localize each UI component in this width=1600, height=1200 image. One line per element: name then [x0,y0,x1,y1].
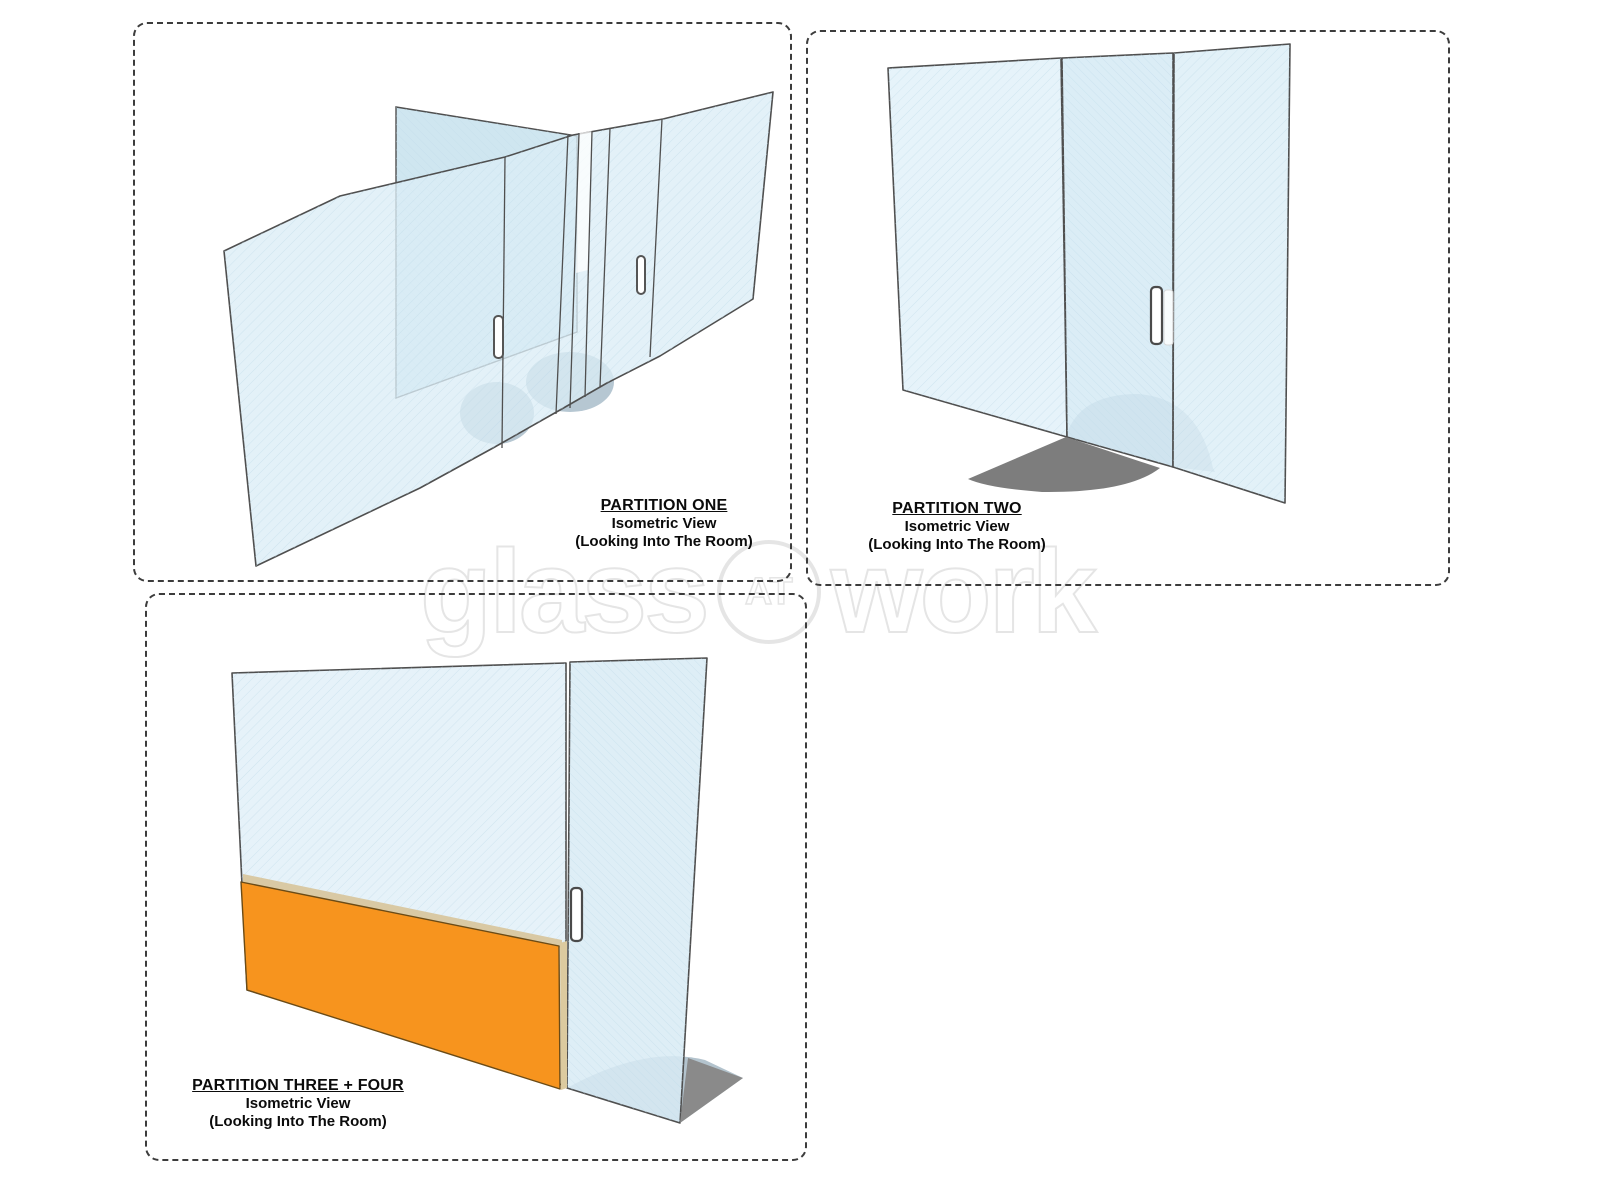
caption-view: Isometric View [173,1095,423,1113]
caption-note: (Looking Into The Room) [539,533,789,551]
caption-partition-one: PARTITION ONE Isometric View (Looking In… [539,497,789,550]
caption-title: PARTITION ONE [539,497,789,515]
caption-partition-three-four: PARTITION THREE + FOUR Isometric View (L… [173,1077,423,1130]
caption-note: (Looking Into The Room) [173,1113,423,1131]
caption-partition-two: PARTITION TWO Isometric View (Looking In… [832,500,1082,553]
detail-box-partition-three-four [145,593,807,1161]
drawing-sheet: glass AT work PARTITION ONE Isometric Vi… [0,0,1600,1200]
caption-note: (Looking Into The Room) [832,536,1082,554]
caption-view: Isometric View [539,515,789,533]
caption-title: PARTITION TWO [832,500,1082,518]
caption-title: PARTITION THREE + FOUR [173,1077,423,1095]
caption-view: Isometric View [832,518,1082,536]
